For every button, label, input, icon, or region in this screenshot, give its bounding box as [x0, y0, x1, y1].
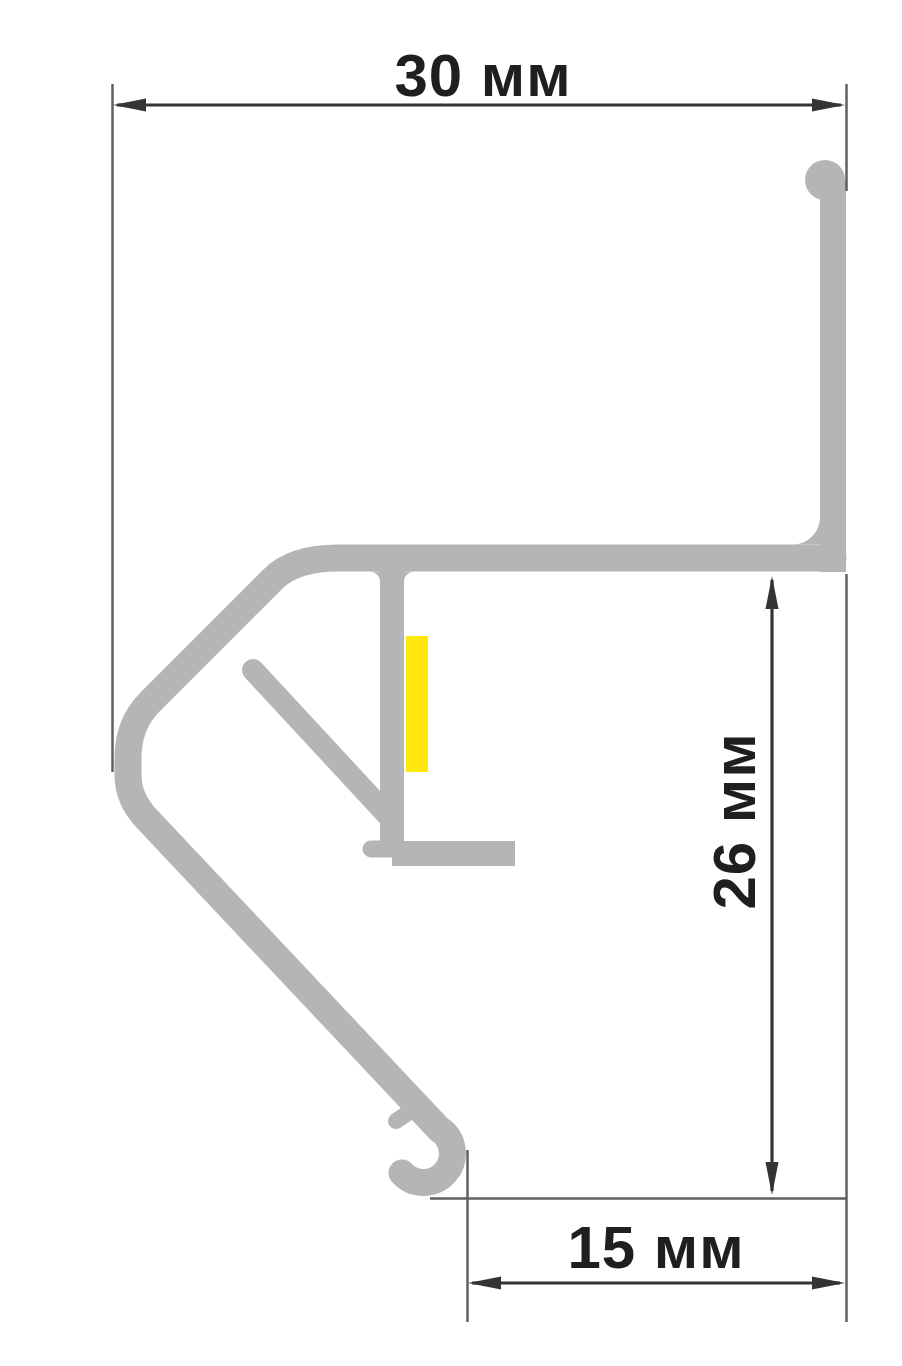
- profile-wall-fillet-left: [370, 572, 380, 582]
- arrowhead-bottom-right: [812, 1277, 845, 1290]
- profile-hook-nub: [396, 1109, 414, 1121]
- profile-cross-section: [128, 160, 846, 1182]
- profile-strut: [253, 670, 392, 820]
- arrowhead-bottom-left: [468, 1277, 501, 1290]
- dimension-width-bottom: 15 мм: [468, 1150, 846, 1322]
- profile-wall-fillet-right: [404, 572, 414, 582]
- dimension-width-top: 30 мм: [113, 42, 847, 772]
- profile-right-arm: [820, 175, 846, 572]
- profile-led-wall: [380, 558, 404, 841]
- technical-drawing-canvas: 30 мм 26 мм 15 мм: [0, 0, 902, 1366]
- dim-width-bottom-label: 15 мм: [567, 1214, 744, 1281]
- dim-width-top-label: 30 мм: [394, 42, 571, 109]
- dim-height-right-label: 26 мм: [701, 732, 768, 909]
- dimension-height-right: 26 мм: [430, 574, 847, 1322]
- led-strip: [406, 636, 428, 772]
- arrowhead-top: [766, 576, 779, 609]
- profile-foot: [392, 841, 515, 866]
- arrowhead-left: [113, 99, 146, 112]
- arrowhead-right: [812, 99, 845, 112]
- arrowhead-bottom: [766, 1162, 779, 1195]
- profile-dimension-drawing: 30 мм 26 мм 15 мм: [0, 0, 902, 1366]
- profile-arm-fillet: [793, 518, 820, 545]
